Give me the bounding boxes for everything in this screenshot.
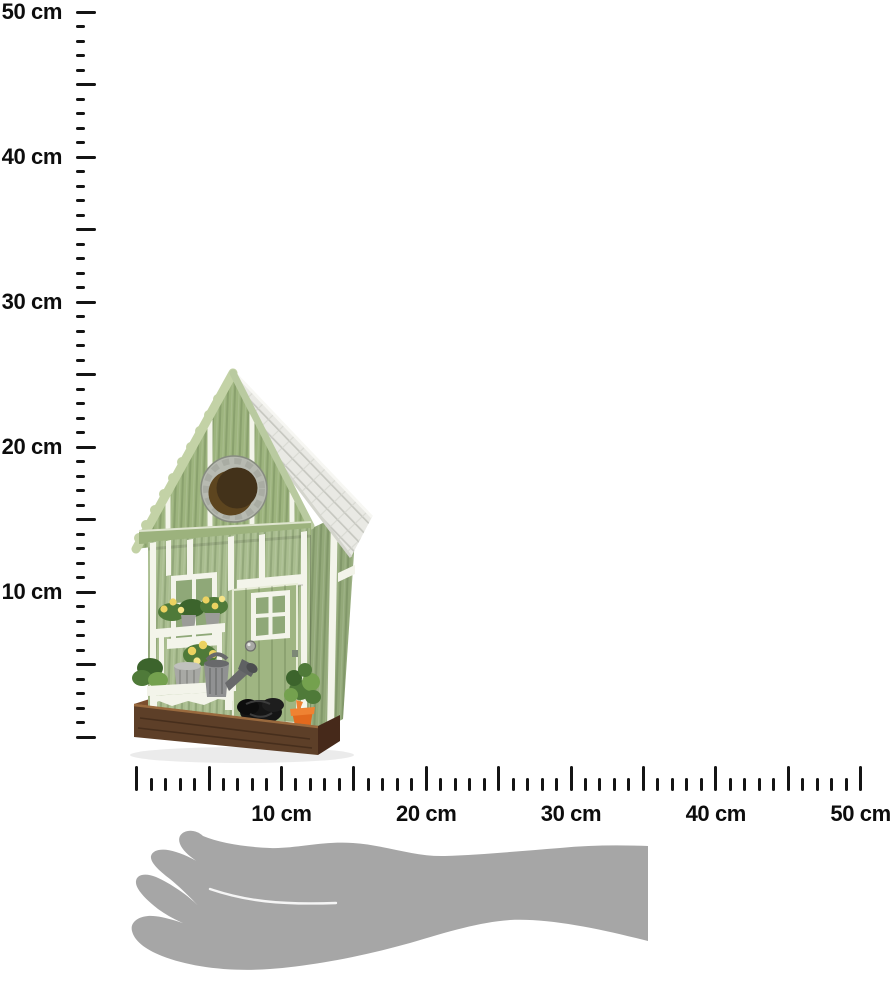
birdhouse-photo <box>130 369 372 763</box>
hand-silhouette <box>132 831 648 970</box>
hand-shape <box>132 831 648 970</box>
entrance-hole <box>201 456 267 522</box>
product-photo-layer <box>0 0 896 984</box>
door-hinge <box>292 650 298 657</box>
door-knob <box>246 641 256 651</box>
product-measurement-image: 50 cm40 cm30 cm20 cm10 cm 10 cm20 cm30 c… <box>0 0 896 984</box>
